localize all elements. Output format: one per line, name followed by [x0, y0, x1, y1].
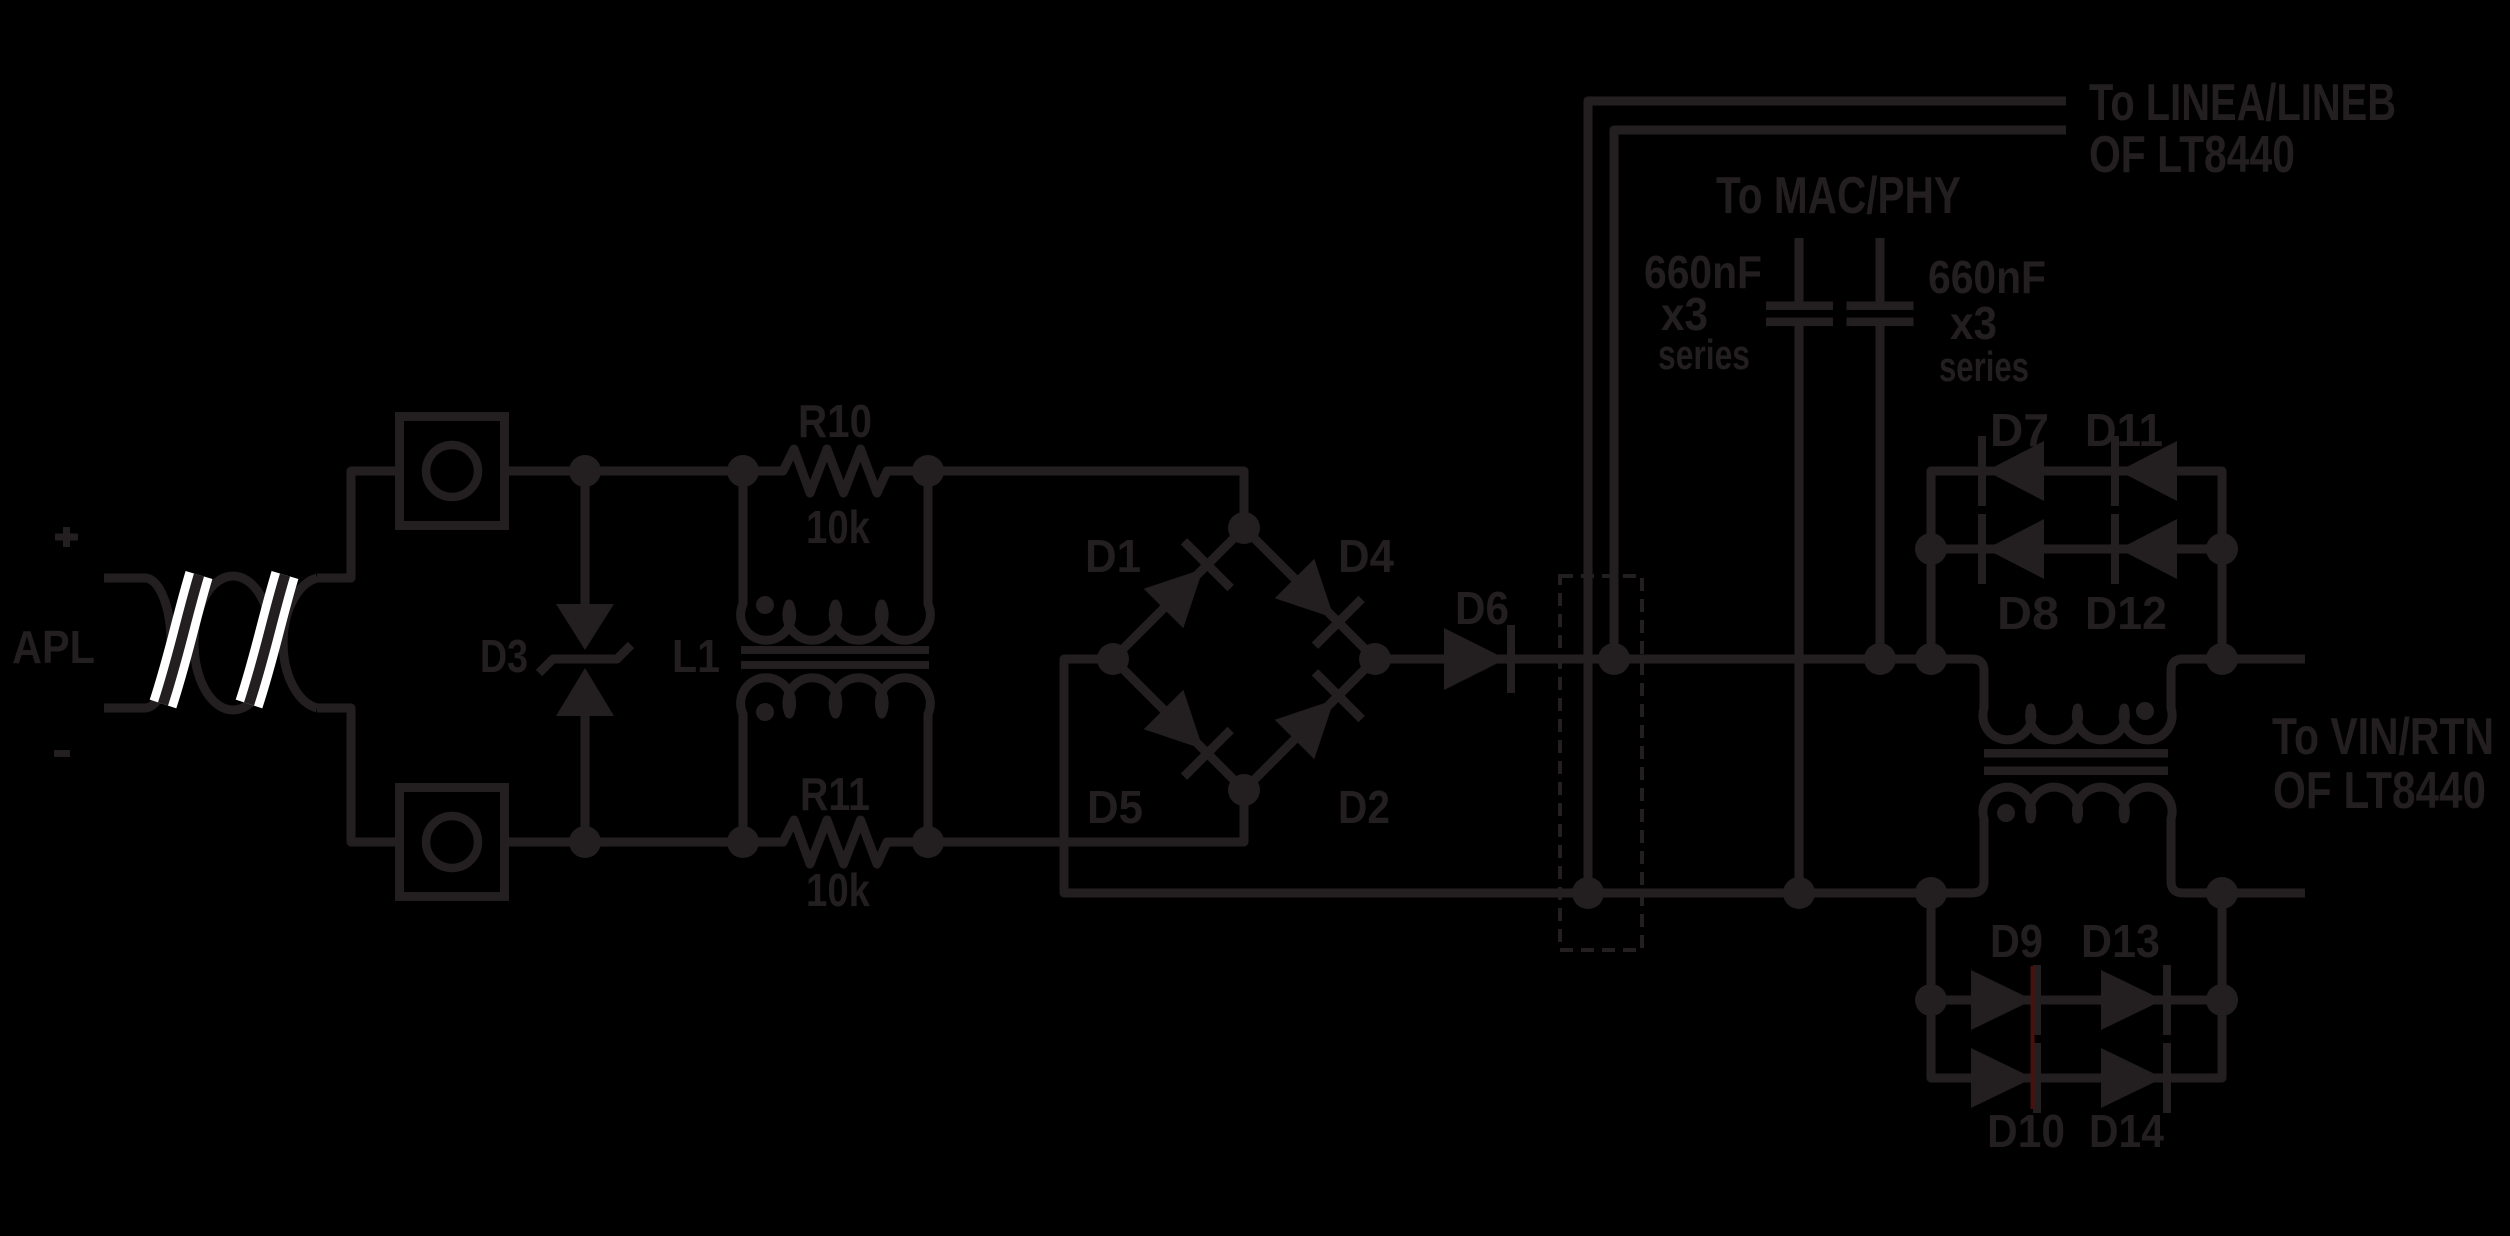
svg-text:series: series: [1939, 343, 2029, 390]
svg-text:D14: D14: [2089, 1105, 2164, 1157]
svg-text:To LINEA/LINEB: To LINEA/LINEB: [2089, 74, 2396, 132]
svg-text:D10: D10: [1987, 1105, 2065, 1157]
svg-text:10k: 10k: [806, 501, 870, 553]
svg-text:D12: D12: [2085, 587, 2167, 639]
svg-text:L1: L1: [672, 630, 720, 682]
svg-text:To MAC/PHY: To MAC/PHY: [1716, 167, 1961, 225]
svg-text:D7: D7: [1990, 404, 2049, 456]
svg-text:10k: 10k: [806, 864, 870, 916]
svg-text:660nF: 660nF: [1928, 251, 2046, 303]
svg-text:R11: R11: [800, 768, 870, 820]
svg-text:D9: D9: [1990, 915, 2043, 967]
svg-text:D4: D4: [1338, 530, 1394, 582]
svg-text:OF LT8440: OF LT8440: [2273, 762, 2486, 820]
svg-text:D8: D8: [1997, 587, 2059, 639]
svg-text:D1: D1: [1085, 530, 1141, 582]
svg-text:series: series: [1658, 331, 1750, 378]
svg-text:D2: D2: [1338, 781, 1390, 833]
svg-text:To VIN/RTN: To VIN/RTN: [2272, 708, 2494, 766]
svg-text:APL: APL: [12, 621, 95, 673]
svg-text:OF LT8440: OF LT8440: [2089, 126, 2295, 184]
svg-text:D13: D13: [2081, 915, 2160, 967]
svg-text:D11: D11: [2085, 404, 2163, 456]
svg-text:x3: x3: [1950, 297, 1997, 349]
svg-text:D5: D5: [1087, 781, 1143, 833]
svg-text:D6: D6: [1455, 582, 1509, 634]
svg-text:D3: D3: [480, 630, 528, 682]
svg-text:R10: R10: [798, 395, 872, 447]
